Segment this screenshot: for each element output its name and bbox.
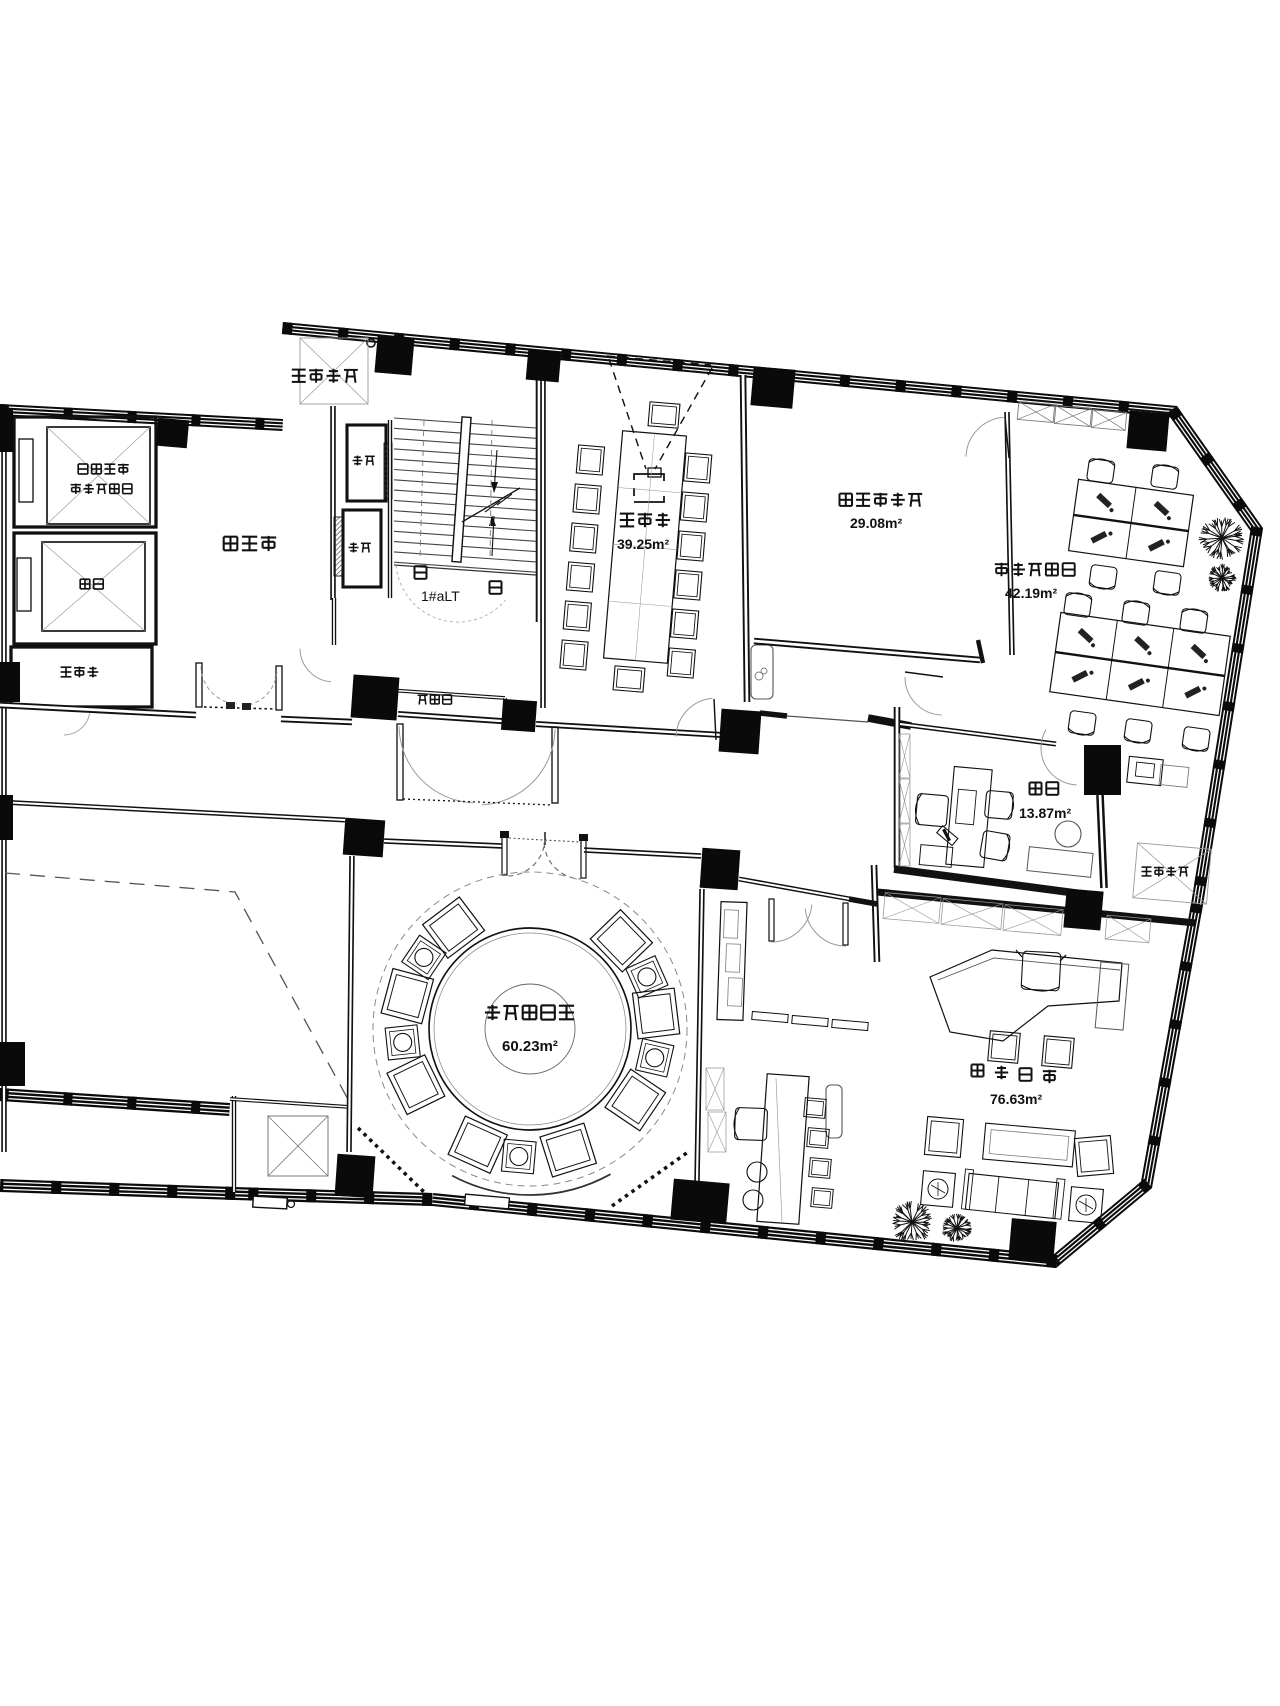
- svg-text:60.23m²: 60.23m²: [502, 1038, 558, 1055]
- svg-text:13.87m²: 13.87m²: [1019, 805, 1071, 821]
- svg-text:39.25m²: 39.25m²: [617, 536, 669, 552]
- svg-text:42.19m²: 42.19m²: [1005, 585, 1057, 601]
- svg-text:29.08m²: 29.08m²: [850, 515, 902, 531]
- svg-text:76.63m²: 76.63m²: [990, 1091, 1042, 1107]
- svg-text:1#aLT: 1#aLT: [421, 588, 460, 604]
